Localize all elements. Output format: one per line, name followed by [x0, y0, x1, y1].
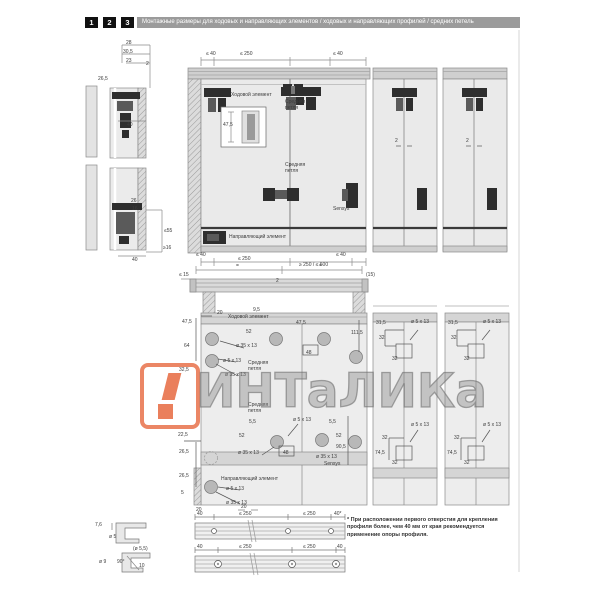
dim-label: ≤ 40	[336, 253, 346, 259]
dim-label: ø 5	[109, 535, 116, 541]
dim-label: 52	[246, 330, 252, 336]
dim-label: =	[319, 264, 322, 270]
dim-label: 32	[464, 357, 470, 363]
dim-label: 10	[139, 564, 145, 570]
dim-label: ø 5 x 13	[411, 320, 429, 326]
dim-label: 32	[382, 436, 388, 442]
dim-label: ø 9	[99, 560, 106, 566]
dim-label: 48	[306, 351, 312, 357]
horizontal-profile-section	[181, 266, 368, 314]
dim-label: 26,5	[179, 450, 189, 456]
middle-hinge-label: Средняя петля	[285, 163, 313, 174]
dim-label: 48	[283, 451, 289, 457]
dim-label: ≥16	[163, 246, 171, 252]
middle-hinge-label: Средняя петля	[248, 361, 276, 372]
running-element-label: Ходовой элемент	[228, 315, 269, 321]
middle-hinge-label: Средняя петля	[285, 100, 313, 111]
dim-label: ≤ 40	[333, 52, 343, 58]
dim-label: 2	[146, 62, 149, 68]
dim-label: 9,5	[253, 308, 260, 314]
dim-label: ø 5 x 13	[226, 487, 244, 493]
dim-label: 40	[197, 545, 203, 551]
technical-drawing	[0, 0, 600, 600]
dim-label: ≤ 40	[206, 52, 216, 58]
dim-label: 40	[337, 545, 343, 551]
dim-label: ø 5 x 13	[293, 418, 311, 424]
dim-label: 52	[336, 434, 342, 440]
dim-label: ≤ 15	[179, 273, 189, 279]
dim-label: 90°	[117, 560, 125, 566]
dim-label: 32	[379, 336, 385, 342]
dim-label: 5,5	[329, 420, 336, 426]
dim-label: ø 5 x 13	[411, 423, 429, 429]
dim-label: 74,5	[447, 451, 457, 457]
dim-label: 31,5	[448, 321, 458, 327]
dim-label: (ø 5,5)	[133, 547, 148, 553]
dim-label: 52	[239, 434, 245, 440]
dim-label: ø 35 x 13	[225, 373, 246, 379]
dim-label: 74,5	[375, 451, 385, 457]
dim-label: ø 5 x 13	[483, 423, 501, 429]
dim-label: 40*	[334, 512, 342, 518]
dim-label: ø 5 x 13	[483, 320, 501, 326]
dim-label: 2	[395, 139, 398, 145]
guiding-element-label: Направляющий элемент	[221, 477, 278, 483]
dim-label: 28	[126, 41, 132, 47]
dim-label: 2	[466, 139, 469, 145]
sensys-label: Sensys	[333, 207, 349, 213]
dim-label: ø 35 x 13	[238, 451, 259, 457]
dim-label: ≤ 250	[239, 545, 251, 551]
document-page: 1 2 3 Монтажные размеры для ходовых и на…	[0, 0, 600, 600]
dim-label: 64	[184, 344, 190, 350]
dim-label: 32	[392, 461, 398, 467]
dim-label: 5,5	[249, 420, 256, 426]
dim-label: ≥ 250 / ≤ 600	[299, 263, 328, 269]
middle-hinge-label: Средняя петля	[248, 403, 276, 414]
dim-label: 26,5	[98, 77, 108, 83]
dim-label: 40	[197, 512, 203, 518]
dim-label: 90,5	[336, 445, 346, 451]
dim-label: ø 35 x 13	[316, 455, 337, 461]
dim-label: 40	[127, 123, 133, 129]
dim-label: 31,5	[376, 321, 386, 327]
dim-label: ≤ 250	[240, 52, 252, 58]
dim-label: 32	[451, 336, 457, 342]
dim-label: 2	[276, 279, 279, 285]
running-element-label: Ходовой элемент	[231, 93, 272, 99]
dim-label: 47,5	[182, 320, 192, 326]
dim-label: 20	[241, 505, 247, 511]
dim-label: 32	[392, 357, 398, 363]
sensys-label: Sensys	[324, 462, 340, 468]
dim-label: 47,5	[223, 123, 233, 129]
dim-label: 47,5	[296, 321, 306, 327]
bottom-profile-strips	[112, 510, 345, 575]
dim-label: ø 35 x 13	[236, 344, 257, 350]
dim-label: ≤ 250	[238, 257, 250, 263]
dim-label: ≤ 250	[303, 512, 315, 518]
drilling-pattern-right	[373, 306, 509, 505]
dim-label: 32	[464, 461, 470, 467]
dim-label: 16	[132, 207, 138, 213]
dim-label: 26	[131, 199, 137, 205]
dim-label: 5	[181, 491, 184, 497]
dim-label: ≤ 40	[196, 253, 206, 259]
guiding-element-icon	[203, 231, 226, 244]
dim-label: =	[236, 264, 239, 270]
dim-label: (15)	[366, 273, 375, 279]
dim-label: 32,5	[179, 368, 189, 374]
footnote: * При расположении первого отверстия для…	[347, 517, 519, 539]
dim-label: 40	[132, 258, 138, 264]
dim-label: 7,6	[95, 523, 102, 529]
dim-label: ≤ 250	[239, 512, 251, 518]
dim-label: 23	[126, 59, 132, 65]
dim-label: 26,5	[179, 474, 189, 480]
dim-label: ø 5 x 13	[223, 359, 241, 365]
dim-label: 22,5	[178, 433, 188, 439]
dim-label: 111,5	[351, 331, 363, 337]
dim-label: ≤55	[164, 229, 172, 235]
guiding-element-label: Направляющий элемент	[229, 235, 286, 241]
front-view-upper-right	[373, 68, 507, 252]
dim-label: 30,5	[123, 50, 133, 56]
dim-label: 20	[217, 311, 223, 317]
dim-label: 32	[454, 436, 460, 442]
dim-label: ≤ 250	[303, 545, 315, 551]
